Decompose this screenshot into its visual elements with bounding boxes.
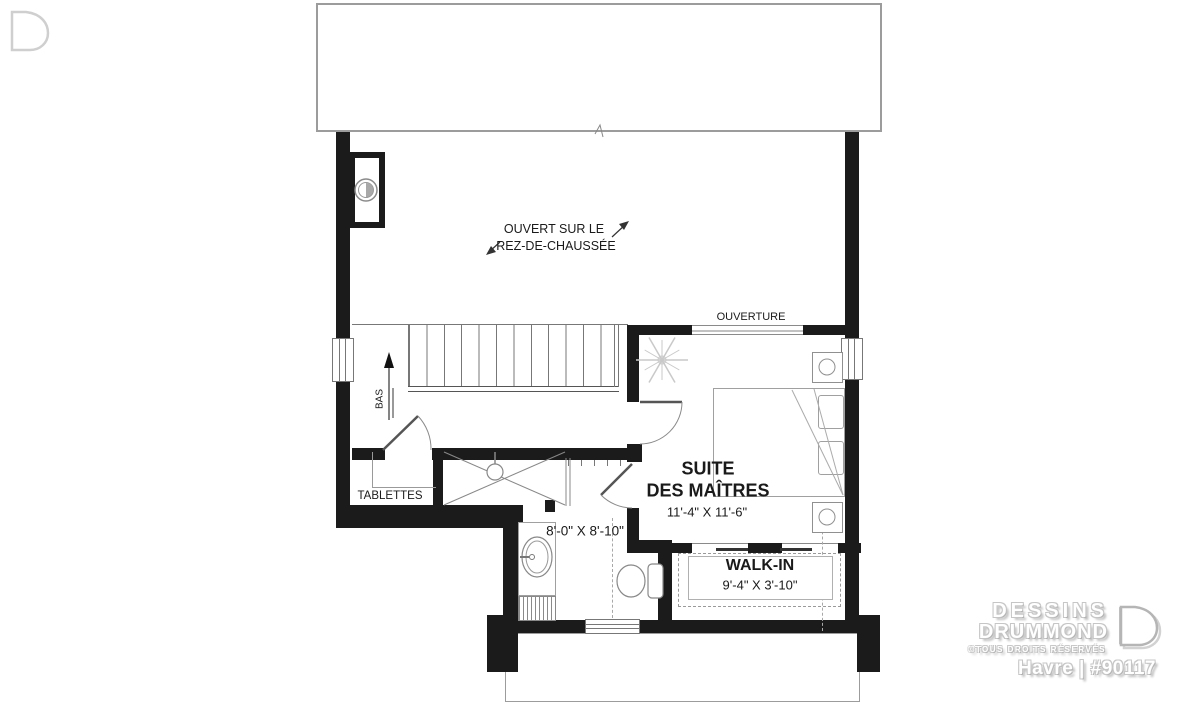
roof-outline-top bbox=[316, 3, 882, 132]
ouverture-opening bbox=[692, 325, 803, 335]
roof-outline-bottom bbox=[505, 633, 860, 702]
walkin-dimensions: 9'-4" X 3'-10" bbox=[723, 578, 798, 593]
window-right bbox=[841, 338, 863, 380]
floor-plan-canvas: OUVERT SUR LE REZ-DE-CHAUSSÉE OUVERTURE … bbox=[0, 0, 1200, 711]
wall-hall-a bbox=[352, 448, 385, 460]
bedroom-door-arc bbox=[640, 402, 682, 444]
open-below-arrow-ne bbox=[612, 224, 626, 237]
stair-treads bbox=[408, 325, 618, 387]
wall-bottom-right bbox=[640, 620, 880, 633]
logo-d-shadow bbox=[1124, 610, 1160, 648]
wall-shower-stub bbox=[545, 500, 555, 512]
wall-closet-right bbox=[433, 448, 443, 508]
knee-wall-ticks bbox=[568, 460, 626, 466]
open-below-arrowhead-ne bbox=[619, 221, 629, 230]
wall-master-top-b bbox=[803, 325, 847, 335]
toilet-bowl bbox=[617, 565, 645, 597]
stairs-down-label: BAS bbox=[375, 389, 386, 409]
walkin-slider-panel-right bbox=[780, 548, 812, 551]
brand-name-line1: DESSINS bbox=[992, 600, 1108, 623]
open-below-arrowhead-sw bbox=[486, 246, 496, 255]
walkin-label: WALK-IN bbox=[726, 557, 794, 575]
master-suite-dimensions: 11'-4" X 11'-6" bbox=[667, 505, 747, 520]
nightstand-bottom bbox=[812, 502, 843, 533]
wall-right-lower bbox=[845, 380, 859, 632]
closet-label: TABLETTES bbox=[358, 490, 423, 502]
bathroom-door-leaf bbox=[601, 464, 632, 495]
closet-shelf-line-v bbox=[372, 452, 373, 487]
wall-band-southwest bbox=[336, 505, 523, 528]
wall-left-upper bbox=[336, 132, 350, 338]
shower-head-icon bbox=[487, 464, 503, 480]
bathroom-door-arc bbox=[601, 495, 632, 508]
closet-door-leaf bbox=[383, 416, 418, 450]
plan-number: Havre | #90117 bbox=[1018, 658, 1156, 680]
walkin-slider-panel-left bbox=[716, 548, 748, 551]
wall-hall-b bbox=[432, 448, 628, 460]
stair-bottom-rail bbox=[408, 386, 619, 392]
logo-d-shape bbox=[1121, 607, 1157, 645]
closet-door-arc bbox=[418, 416, 431, 450]
open-below-label-line2: REZ-DE-CHAUSSÉE bbox=[496, 239, 615, 253]
corner-pillar-southeast bbox=[857, 615, 880, 672]
open-below-label-line1: OUVERT SUR LE bbox=[504, 222, 604, 236]
wall-walkin-top-c bbox=[838, 543, 861, 553]
stair-right-edge bbox=[614, 325, 619, 387]
wall-master-left-upper bbox=[627, 325, 639, 402]
logo-d-overlay bbox=[1112, 598, 1164, 654]
pilaster-bath-door bbox=[627, 444, 642, 462]
pillow-top bbox=[818, 395, 844, 429]
ceiling-fan-icon bbox=[636, 337, 688, 382]
wall-walkin-top-b bbox=[748, 543, 782, 553]
stairs-down-arrowhead bbox=[384, 352, 394, 368]
wall-right-upper bbox=[845, 132, 859, 338]
master-suite-label-line2: DES MAÎTRES bbox=[646, 481, 769, 502]
wall-walkin-top-a bbox=[672, 543, 692, 553]
wall-master-top-a bbox=[628, 325, 692, 335]
wall-left-lower bbox=[336, 382, 350, 506]
wall-walkin-left bbox=[658, 543, 672, 632]
window-bottom bbox=[585, 619, 640, 634]
corner-pillar-southwest bbox=[487, 615, 518, 672]
master-suite-label-line1: SUITE bbox=[681, 459, 734, 480]
brand-name-line2: DRUMMOND bbox=[979, 621, 1108, 644]
brand-rights: ©TOUS DROITS RÉSERVÉS bbox=[968, 645, 1106, 654]
chimney-chase bbox=[349, 152, 385, 228]
linen-cabinet bbox=[518, 596, 556, 621]
bathroom-dimensions: 8'-0" X 8'-10" bbox=[546, 524, 624, 539]
window-left bbox=[332, 338, 354, 382]
ouverture-label: OUVERTURE bbox=[717, 311, 786, 323]
nightstand-top bbox=[812, 352, 843, 383]
closet-shelf-line-h bbox=[372, 487, 436, 488]
pillow-bottom bbox=[818, 441, 844, 475]
